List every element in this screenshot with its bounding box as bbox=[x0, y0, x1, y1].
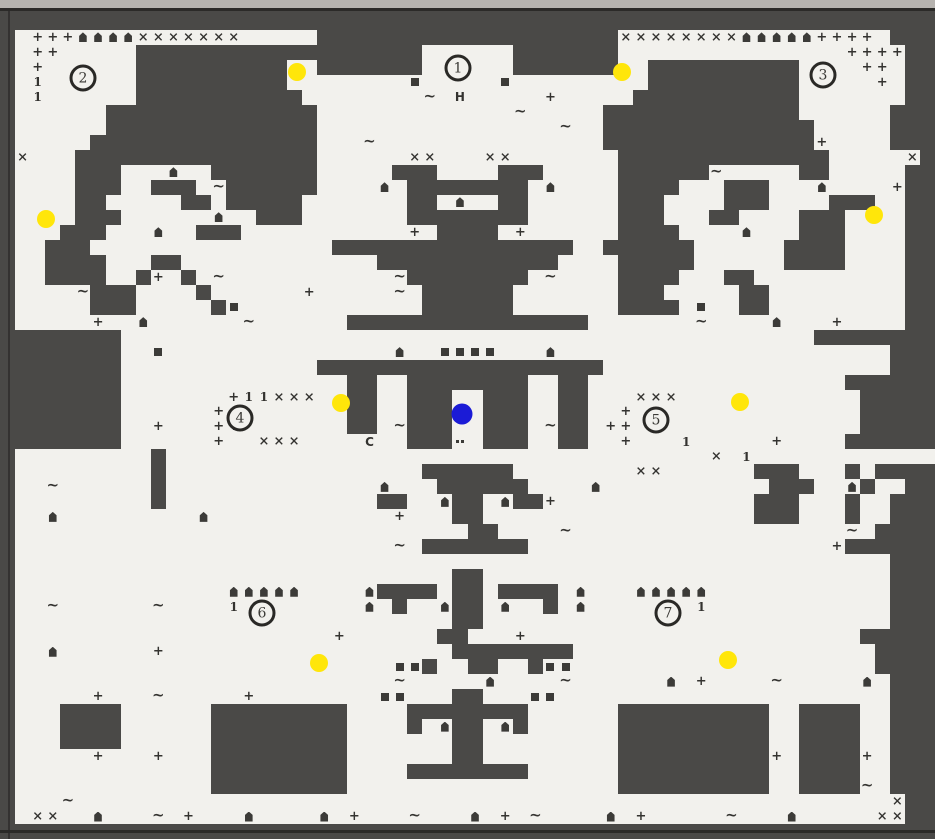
hut-icon bbox=[364, 602, 374, 612]
plus-symbol: + bbox=[862, 46, 873, 59]
plus-symbol: + bbox=[832, 316, 843, 329]
plus-symbol: + bbox=[515, 226, 526, 239]
yellow-dot-5 bbox=[332, 394, 350, 412]
hut-icon bbox=[772, 32, 782, 42]
plus-symbol: + bbox=[93, 690, 104, 703]
hut-icon bbox=[666, 587, 676, 597]
block-icon bbox=[441, 348, 449, 356]
plus-symbol: + bbox=[892, 46, 903, 59]
plus-symbol: + bbox=[696, 675, 707, 688]
hut-icon bbox=[199, 512, 209, 522]
cross-symbol: × bbox=[892, 795, 903, 808]
cross-symbol: × bbox=[213, 31, 224, 44]
hut-icon bbox=[440, 602, 450, 612]
cross-symbol: × bbox=[198, 31, 209, 44]
one-symbol: 1 bbox=[245, 391, 253, 403]
cross-symbol: × bbox=[289, 391, 300, 404]
plus-symbol: + bbox=[545, 495, 556, 508]
one-symbol: 1 bbox=[230, 601, 238, 613]
hut-icon bbox=[229, 587, 239, 597]
cross-symbol: × bbox=[304, 391, 315, 404]
plus-symbol: + bbox=[153, 420, 164, 433]
hut-icon bbox=[380, 482, 390, 492]
tilde-symbol: ~ bbox=[770, 673, 783, 688]
tilde-symbol: ~ bbox=[212, 269, 225, 284]
tilde-symbol: ~ bbox=[529, 808, 542, 823]
hut-icon bbox=[440, 722, 450, 732]
yellow-dot-2 bbox=[613, 63, 631, 81]
one-symbol: 1 bbox=[742, 451, 750, 463]
plus-symbol: + bbox=[213, 420, 224, 433]
hut-icon bbox=[364, 587, 374, 597]
block-icon bbox=[546, 693, 554, 701]
tilde-symbol: ~ bbox=[559, 119, 572, 134]
block-icon bbox=[396, 693, 404, 701]
hut-icon bbox=[380, 182, 390, 192]
hut-icon bbox=[93, 812, 103, 822]
hut-icon bbox=[123, 32, 133, 42]
plus-symbol: + bbox=[228, 391, 239, 404]
dungeon-map-canvas: +++×××××××××××××××+++++++++++++1+1~H+~~~… bbox=[0, 0, 935, 839]
plus-symbol: + bbox=[620, 420, 631, 433]
cross-symbol: × bbox=[424, 151, 435, 164]
cross-symbol: × bbox=[183, 31, 194, 44]
location-marker-5: 5 bbox=[643, 407, 670, 434]
tilde-symbol: ~ bbox=[544, 269, 557, 284]
yellow-dot-4 bbox=[865, 206, 883, 224]
plus-symbol: + bbox=[847, 46, 858, 59]
hut-icon bbox=[78, 32, 88, 42]
tilde-symbol: ~ bbox=[861, 778, 874, 793]
scan-border-line-left bbox=[8, 10, 10, 839]
plus-symbol: + bbox=[771, 435, 782, 448]
hut-icon bbox=[545, 347, 555, 357]
tilde-symbol: ~ bbox=[695, 314, 708, 329]
hut-icon bbox=[500, 497, 510, 507]
plus-symbol: + bbox=[862, 750, 873, 763]
plus-symbol: + bbox=[243, 690, 254, 703]
hut-icon bbox=[500, 602, 510, 612]
tilde-symbol: ~ bbox=[152, 598, 165, 613]
plus-symbol: + bbox=[32, 61, 43, 74]
block-icon bbox=[562, 663, 570, 671]
one-symbol: 1 bbox=[34, 76, 42, 88]
block-icon bbox=[486, 348, 494, 356]
plus-symbol: + bbox=[635, 810, 646, 823]
cross-symbol: × bbox=[711, 31, 722, 44]
tilde-symbol: ~ bbox=[363, 134, 376, 149]
plus-symbol: + bbox=[32, 46, 43, 59]
hut-icon bbox=[485, 677, 495, 687]
plus-symbol: + bbox=[892, 181, 903, 194]
one-symbol: 1 bbox=[34, 91, 42, 103]
plus-symbol: + bbox=[847, 31, 858, 44]
cross-symbol: × bbox=[258, 435, 269, 448]
block-icon bbox=[411, 663, 419, 671]
tilde-symbol: ~ bbox=[77, 284, 90, 299]
hut-icon bbox=[259, 587, 269, 597]
plus-symbol: + bbox=[816, 136, 827, 149]
hut-icon bbox=[289, 587, 299, 597]
hut-icon bbox=[138, 317, 148, 327]
plus-symbol: + bbox=[620, 405, 631, 418]
location-marker-3: 3 bbox=[810, 62, 837, 89]
hut-icon bbox=[741, 32, 751, 42]
location-marker-2: 2 bbox=[70, 65, 97, 92]
plus-symbol: + bbox=[545, 91, 556, 104]
tilde-symbol: ~ bbox=[559, 673, 572, 688]
tilde-symbol: ~ bbox=[152, 688, 165, 703]
tilde-symbol: ~ bbox=[393, 538, 406, 553]
hut-icon bbox=[802, 32, 812, 42]
hut-icon bbox=[847, 482, 857, 492]
hut-icon bbox=[319, 812, 329, 822]
hut-icon bbox=[244, 587, 254, 597]
cross-symbol: × bbox=[696, 31, 707, 44]
plus-symbol: + bbox=[62, 31, 73, 44]
hut-icon bbox=[440, 497, 450, 507]
cross-symbol: × bbox=[892, 810, 903, 823]
letter-C: C bbox=[365, 436, 374, 448]
block-icon bbox=[230, 303, 238, 311]
hut-icon bbox=[214, 212, 224, 222]
tilde-symbol: ~ bbox=[514, 104, 527, 119]
hut-icon bbox=[48, 512, 58, 522]
scan-border-line-bottom bbox=[0, 830, 935, 833]
cross-symbol: × bbox=[47, 810, 58, 823]
tilde-symbol: ~ bbox=[559, 523, 572, 538]
location-marker-7: 7 bbox=[655, 600, 682, 627]
plus-symbol: + bbox=[832, 31, 843, 44]
cross-symbol: × bbox=[228, 31, 239, 44]
letter-H: H bbox=[455, 91, 465, 103]
tilde-symbol: ~ bbox=[46, 598, 59, 613]
scan-page-edge-strip bbox=[0, 0, 935, 8]
plus-symbol: + bbox=[32, 31, 43, 44]
cross-symbol: × bbox=[666, 31, 677, 44]
plus-symbol: + bbox=[153, 645, 164, 658]
hut-icon bbox=[108, 32, 118, 42]
block-icon bbox=[546, 663, 554, 671]
tilde-symbol: ~ bbox=[393, 418, 406, 433]
cross-symbol: × bbox=[907, 151, 918, 164]
cross-symbol: × bbox=[289, 435, 300, 448]
plus-symbol: + bbox=[334, 630, 345, 643]
cross-symbol: × bbox=[32, 810, 43, 823]
hut-icon bbox=[545, 182, 555, 192]
hut-icon bbox=[696, 587, 706, 597]
cross-symbol: × bbox=[485, 151, 496, 164]
location-marker-4: 4 bbox=[227, 405, 254, 432]
block-icon bbox=[471, 348, 479, 356]
block-icon bbox=[501, 78, 509, 86]
cross-symbol: × bbox=[651, 391, 662, 404]
cross-symbol: × bbox=[726, 31, 737, 44]
tilde-symbol: ~ bbox=[393, 284, 406, 299]
tilde-symbol: ~ bbox=[152, 808, 165, 823]
location-marker-1: 1 bbox=[445, 55, 472, 82]
hut-icon bbox=[500, 722, 510, 732]
plus-symbol: + bbox=[862, 61, 873, 74]
tilde-symbol: ~ bbox=[212, 179, 225, 194]
plus-symbol: + bbox=[394, 510, 405, 523]
tilde-symbol: ~ bbox=[62, 793, 75, 808]
hut-icon bbox=[757, 32, 767, 42]
hut-icon bbox=[817, 182, 827, 192]
hut-icon bbox=[274, 587, 284, 597]
one-symbol: 1 bbox=[682, 436, 690, 448]
scan-border-line-top bbox=[0, 8, 935, 11]
hut-icon bbox=[576, 602, 586, 612]
plus-symbol: + bbox=[877, 46, 888, 59]
plus-symbol: + bbox=[304, 286, 315, 299]
plus-symbol: + bbox=[213, 405, 224, 418]
cross-symbol: × bbox=[651, 465, 662, 478]
cross-symbol: × bbox=[274, 435, 285, 448]
cross-symbol: × bbox=[635, 391, 646, 404]
plus-symbol: + bbox=[877, 61, 888, 74]
hut-icon bbox=[168, 167, 178, 177]
plus-symbol: + bbox=[620, 435, 631, 448]
plus-symbol: + bbox=[349, 810, 360, 823]
hut-icon bbox=[787, 32, 797, 42]
cross-symbol: × bbox=[138, 31, 149, 44]
yellow-dot-1 bbox=[288, 63, 306, 81]
tilde-symbol: ~ bbox=[725, 808, 738, 823]
hut-icon bbox=[651, 587, 661, 597]
block-icon bbox=[154, 348, 162, 356]
tilde-symbol: ~ bbox=[710, 164, 723, 179]
plus-symbol: + bbox=[183, 810, 194, 823]
double-dot-icon bbox=[456, 440, 464, 443]
tilde-symbol: ~ bbox=[408, 808, 421, 823]
plus-symbol: + bbox=[877, 76, 888, 89]
hut-icon bbox=[681, 587, 691, 597]
blue-position-dot bbox=[452, 404, 473, 425]
hut-icon bbox=[772, 317, 782, 327]
hut-icon bbox=[741, 227, 751, 237]
plus-symbol: + bbox=[862, 31, 873, 44]
yellow-dot-7 bbox=[310, 654, 328, 672]
cross-symbol: × bbox=[711, 450, 722, 463]
hut-icon bbox=[862, 677, 872, 687]
block-icon bbox=[396, 663, 404, 671]
plus-symbol: + bbox=[515, 630, 526, 643]
block-icon bbox=[411, 78, 419, 86]
yellow-dot-3 bbox=[37, 210, 55, 228]
cross-symbol: × bbox=[409, 151, 420, 164]
plus-symbol: + bbox=[47, 46, 58, 59]
cross-symbol: × bbox=[168, 31, 179, 44]
hut-icon bbox=[636, 587, 646, 597]
plus-symbol: + bbox=[771, 750, 782, 763]
plus-symbol: + bbox=[409, 226, 420, 239]
cross-symbol: × bbox=[651, 31, 662, 44]
block-icon bbox=[697, 303, 705, 311]
cross-symbol: × bbox=[635, 465, 646, 478]
plus-symbol: + bbox=[500, 810, 511, 823]
yellow-dot-8 bbox=[719, 651, 737, 669]
block-icon bbox=[381, 693, 389, 701]
block-icon bbox=[456, 348, 464, 356]
cross-symbol: × bbox=[877, 810, 888, 823]
hut-icon bbox=[153, 227, 163, 237]
hut-icon bbox=[591, 482, 601, 492]
hut-icon bbox=[576, 587, 586, 597]
location-marker-6: 6 bbox=[249, 600, 276, 627]
plus-symbol: + bbox=[93, 316, 104, 329]
plus-symbol: + bbox=[832, 540, 843, 553]
plus-symbol: + bbox=[605, 420, 616, 433]
one-symbol: 1 bbox=[260, 391, 268, 403]
cross-symbol: × bbox=[17, 151, 28, 164]
cross-symbol: × bbox=[620, 31, 631, 44]
hut-icon bbox=[455, 197, 465, 207]
tilde-symbol: ~ bbox=[544, 418, 557, 433]
plus-symbol: + bbox=[47, 31, 58, 44]
hut-icon bbox=[48, 647, 58, 657]
block-icon bbox=[531, 693, 539, 701]
tilde-symbol: ~ bbox=[243, 314, 256, 329]
cross-symbol: × bbox=[681, 31, 692, 44]
tilde-symbol: ~ bbox=[46, 478, 59, 493]
hut-icon bbox=[93, 32, 103, 42]
hut-icon bbox=[666, 677, 676, 687]
hut-icon bbox=[606, 812, 616, 822]
hut-icon bbox=[395, 347, 405, 357]
cross-symbol: × bbox=[153, 31, 164, 44]
cross-symbol: × bbox=[500, 151, 511, 164]
yellow-dot-6 bbox=[731, 393, 749, 411]
plus-symbol: + bbox=[213, 435, 224, 448]
plus-symbol: + bbox=[153, 750, 164, 763]
cross-symbol: × bbox=[274, 391, 285, 404]
hut-icon bbox=[787, 812, 797, 822]
plus-symbol: + bbox=[153, 271, 164, 284]
hut-icon bbox=[244, 812, 254, 822]
hut-icon bbox=[470, 812, 480, 822]
tilde-symbol: ~ bbox=[393, 673, 406, 688]
cross-symbol: × bbox=[635, 31, 646, 44]
tilde-symbol: ~ bbox=[846, 523, 859, 538]
one-symbol: 1 bbox=[697, 601, 705, 613]
plus-symbol: + bbox=[816, 31, 827, 44]
tilde-symbol: ~ bbox=[424, 89, 437, 104]
cross-symbol: × bbox=[666, 391, 677, 404]
plus-symbol: + bbox=[93, 750, 104, 763]
